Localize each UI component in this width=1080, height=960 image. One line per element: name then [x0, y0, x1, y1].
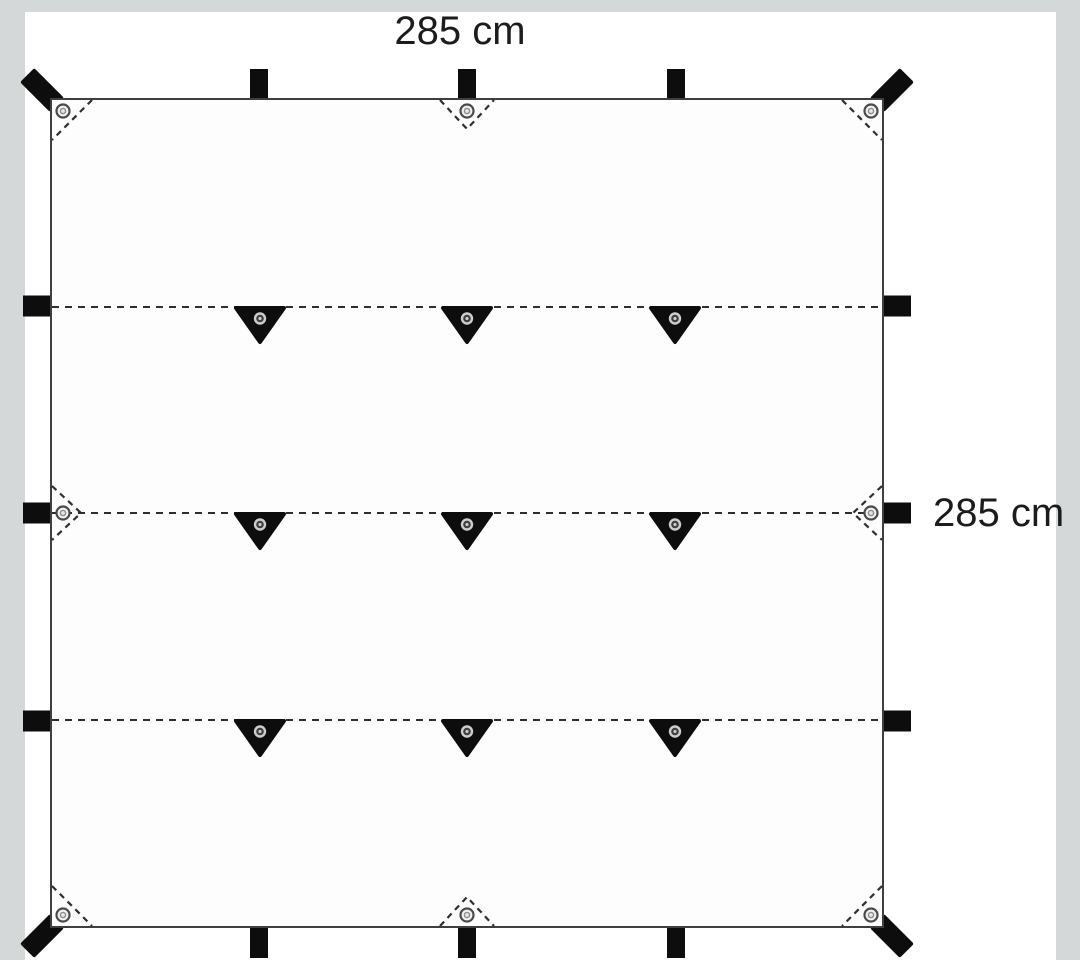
webbing-tab-top [667, 69, 685, 98]
edge-grommet-patch-top [438, 99, 496, 131]
tie-down-loop [233, 511, 287, 551]
tie-loop-icon [233, 718, 287, 758]
tie-down-loop [440, 305, 494, 345]
tie-down-loop [648, 718, 702, 758]
tie-loop-icon [233, 511, 287, 551]
edge-grommet-patch-left [51, 484, 83, 542]
edge-grommet-patch-right [851, 484, 883, 542]
right-dimension-label: 285 cm [933, 491, 1064, 535]
corner-patch-icon [51, 885, 93, 927]
webbing-tab-right [884, 710, 911, 731]
corner-grommet-patch-bottom-left [51, 885, 93, 927]
edge-grommet-patch-bottom [438, 895, 496, 927]
tie-loop-icon [233, 305, 287, 345]
corner-grommet-patch-top-left [51, 99, 93, 141]
webbing-tab-left [23, 295, 50, 316]
edge-patch-icon [51, 484, 83, 542]
tie-down-loop [440, 718, 494, 758]
tie-loop-icon [648, 305, 702, 345]
tie-down-loop [233, 718, 287, 758]
edge-patch-icon [438, 99, 496, 131]
tie-loop-icon [440, 718, 494, 758]
tie-down-loop [648, 511, 702, 551]
webbing-tab-top [250, 69, 268, 98]
tie-down-loop [440, 511, 494, 551]
corner-grommet-patch-bottom-right [841, 885, 883, 927]
tie-loop-icon [648, 718, 702, 758]
webbing-tab-left [23, 503, 50, 524]
webbing-tab-left [23, 710, 50, 731]
webbing-tab-right [884, 295, 911, 316]
tie-loop-icon [440, 305, 494, 345]
corner-patch-icon [841, 99, 883, 141]
corner-grommet-patch-top-right [841, 99, 883, 141]
corner-patch-icon [51, 99, 93, 141]
webbing-tab-top [458, 69, 476, 98]
corner-patch-icon [841, 885, 883, 927]
edge-patch-icon [438, 895, 496, 927]
tarp-panel [50, 98, 884, 928]
top-dimension-label: 285 cm [394, 9, 525, 53]
webbing-tab-bottom [667, 928, 685, 958]
edge-patch-icon [851, 484, 883, 542]
webbing-tab-bottom [250, 928, 268, 958]
tie-down-loop [648, 305, 702, 345]
tie-loop-icon [648, 511, 702, 551]
tie-loop-icon [440, 511, 494, 551]
webbing-tab-right [884, 503, 911, 524]
webbing-tab-bottom [458, 928, 476, 958]
tie-down-loop [233, 305, 287, 345]
tarp [50, 98, 884, 928]
tarp-dimension-diagram: 285 cm 285 cm [0, 0, 1080, 960]
